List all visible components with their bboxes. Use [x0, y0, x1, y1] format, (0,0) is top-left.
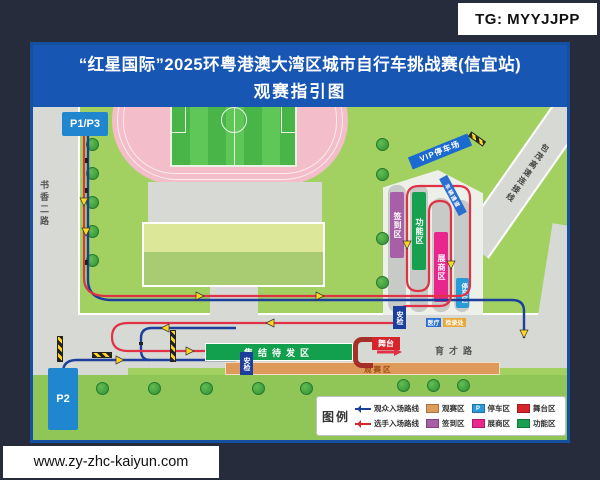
security-check-2-label: 安检 — [396, 311, 403, 325]
vip-parking-banner: VIP停车场 — [408, 133, 472, 169]
legend-grid: 观众入场路线 观赛区 P 停车区 舞台区 选手入场路线 — [355, 403, 556, 429]
function-area-swatch-icon — [517, 419, 530, 428]
parking-p2-label: P2 — [56, 393, 69, 405]
legend-item: 舞台区 — [517, 403, 556, 414]
zone-checkin: 签到区 — [390, 192, 404, 258]
road-shuxiang-label: 书香二路 — [39, 180, 48, 228]
stage-sign: 舞台 — [372, 337, 400, 350]
legend-label: 停车区 — [488, 403, 511, 414]
road-baomao-label: 包茂高速连接线 — [504, 142, 551, 204]
tree — [86, 167, 99, 180]
viewing-area-swatch-icon — [426, 404, 439, 413]
road-yucai-label: 育才路 — [435, 344, 477, 357]
title-bar: “红星国际”2025环粤港澳大湾区城市自行车挑战赛(信宜站) 观赛指引图 — [33, 45, 567, 107]
tree — [376, 276, 389, 289]
tree — [86, 254, 99, 267]
watermark-bottom: www.zy-zhc-kaiyun.com — [3, 446, 219, 478]
legend-item: 观赛区 — [426, 403, 465, 414]
zone-function-label: 功能区 — [415, 218, 423, 245]
tree — [427, 379, 440, 392]
zone-exhibitor-label: 展商区 — [437, 254, 445, 281]
legend-title: 图例 — [322, 408, 350, 425]
legend: 图例 观众入场路线 观赛区 P 停车区 舞台区 — [316, 396, 566, 436]
tree — [376, 168, 389, 181]
security-check-1-label: 安检 — [243, 357, 250, 371]
rider-route-icon — [355, 423, 371, 425]
legend-label: 功能区 — [533, 418, 556, 429]
zone-function: 功能区 — [412, 192, 426, 270]
medical-point: 医疗 — [426, 318, 441, 327]
tree — [397, 379, 410, 392]
start-arch — [353, 337, 373, 368]
security-check-2: 安检 — [393, 306, 406, 329]
spectator-route-icon — [355, 408, 371, 410]
legend-item: 功能区 — [517, 418, 556, 429]
zone-parking-strip: 停车区 — [456, 278, 469, 308]
zone-assembly: 集结待发区 — [205, 343, 353, 361]
legend-label: 观赛区 — [442, 403, 465, 414]
parking-area-swatch-icon: P — [472, 404, 485, 413]
legend-item: 观众入场路线 — [355, 403, 419, 414]
screenshot-root: TG: MYYJJPP www.zy-zhc-kaiyun.com 包茂高速连接… — [0, 0, 600, 480]
tree — [376, 232, 389, 245]
legend-label: 选手入场路线 — [374, 418, 419, 429]
stage-label: 舞台 — [378, 338, 394, 349]
zone-checkin-label: 签到区 — [393, 212, 401, 239]
exhibitor-area-swatch-icon — [472, 419, 485, 428]
zone-parking-strip-label: 停车区 — [459, 283, 466, 303]
road-right-connector — [538, 223, 570, 322]
zone-assembly-label: 集结待发区 — [244, 346, 314, 359]
legend-item: 选手入场路线 — [355, 418, 419, 429]
kit-check-point: 检录处 — [443, 318, 466, 327]
tree — [376, 138, 389, 151]
legend-item: P 停车区 — [472, 403, 511, 414]
legend-label: 签到区 — [442, 418, 465, 429]
tree — [86, 138, 99, 151]
parking-p1p3-label: P1/P3 — [70, 118, 100, 130]
tree — [252, 382, 265, 395]
vip-parking-label: VIP停车场 — [418, 138, 462, 164]
kit-check-label: 检录处 — [445, 318, 463, 327]
parking-p1p3-sign: P1/P3 — [62, 112, 108, 136]
legend-label: 展商区 — [488, 418, 511, 429]
tree — [86, 225, 99, 238]
legend-label: 舞台区 — [533, 403, 556, 414]
barrier — [57, 336, 63, 362]
tree — [457, 379, 470, 392]
tree — [86, 196, 99, 209]
parking-p2-sign: P2 — [48, 368, 78, 430]
tree — [148, 382, 161, 395]
gym-building — [142, 222, 325, 287]
barrier — [170, 330, 176, 362]
barrier — [92, 352, 112, 358]
checkin-area-swatch-icon — [426, 419, 439, 428]
event-title-line2: 观赛指引图 — [254, 78, 347, 102]
legend-item: 签到区 — [426, 418, 465, 429]
tree — [96, 382, 109, 395]
medical-label: 医疗 — [427, 318, 439, 327]
event-title-line1: “红星国际”2025环粤港澳大湾区城市自行车挑战赛(信宜站) — [79, 51, 521, 75]
event-map: 包茂高速连接线 签到区 功能区 展商区 — [30, 42, 570, 443]
tree — [300, 382, 313, 395]
plaza-connector — [210, 287, 258, 318]
field-center-circle — [221, 107, 247, 133]
stadium-plaza — [148, 182, 322, 224]
legend-label: 观众入场路线 — [374, 403, 419, 414]
zone-exhibitor: 展商区 — [434, 232, 448, 302]
legend-item: 展商区 — [472, 418, 511, 429]
watermark-top: TG: MYYJJPP — [458, 3, 597, 35]
security-check-1: 安检 — [240, 352, 253, 375]
tree — [200, 382, 213, 395]
stage-area-swatch-icon — [517, 404, 530, 413]
